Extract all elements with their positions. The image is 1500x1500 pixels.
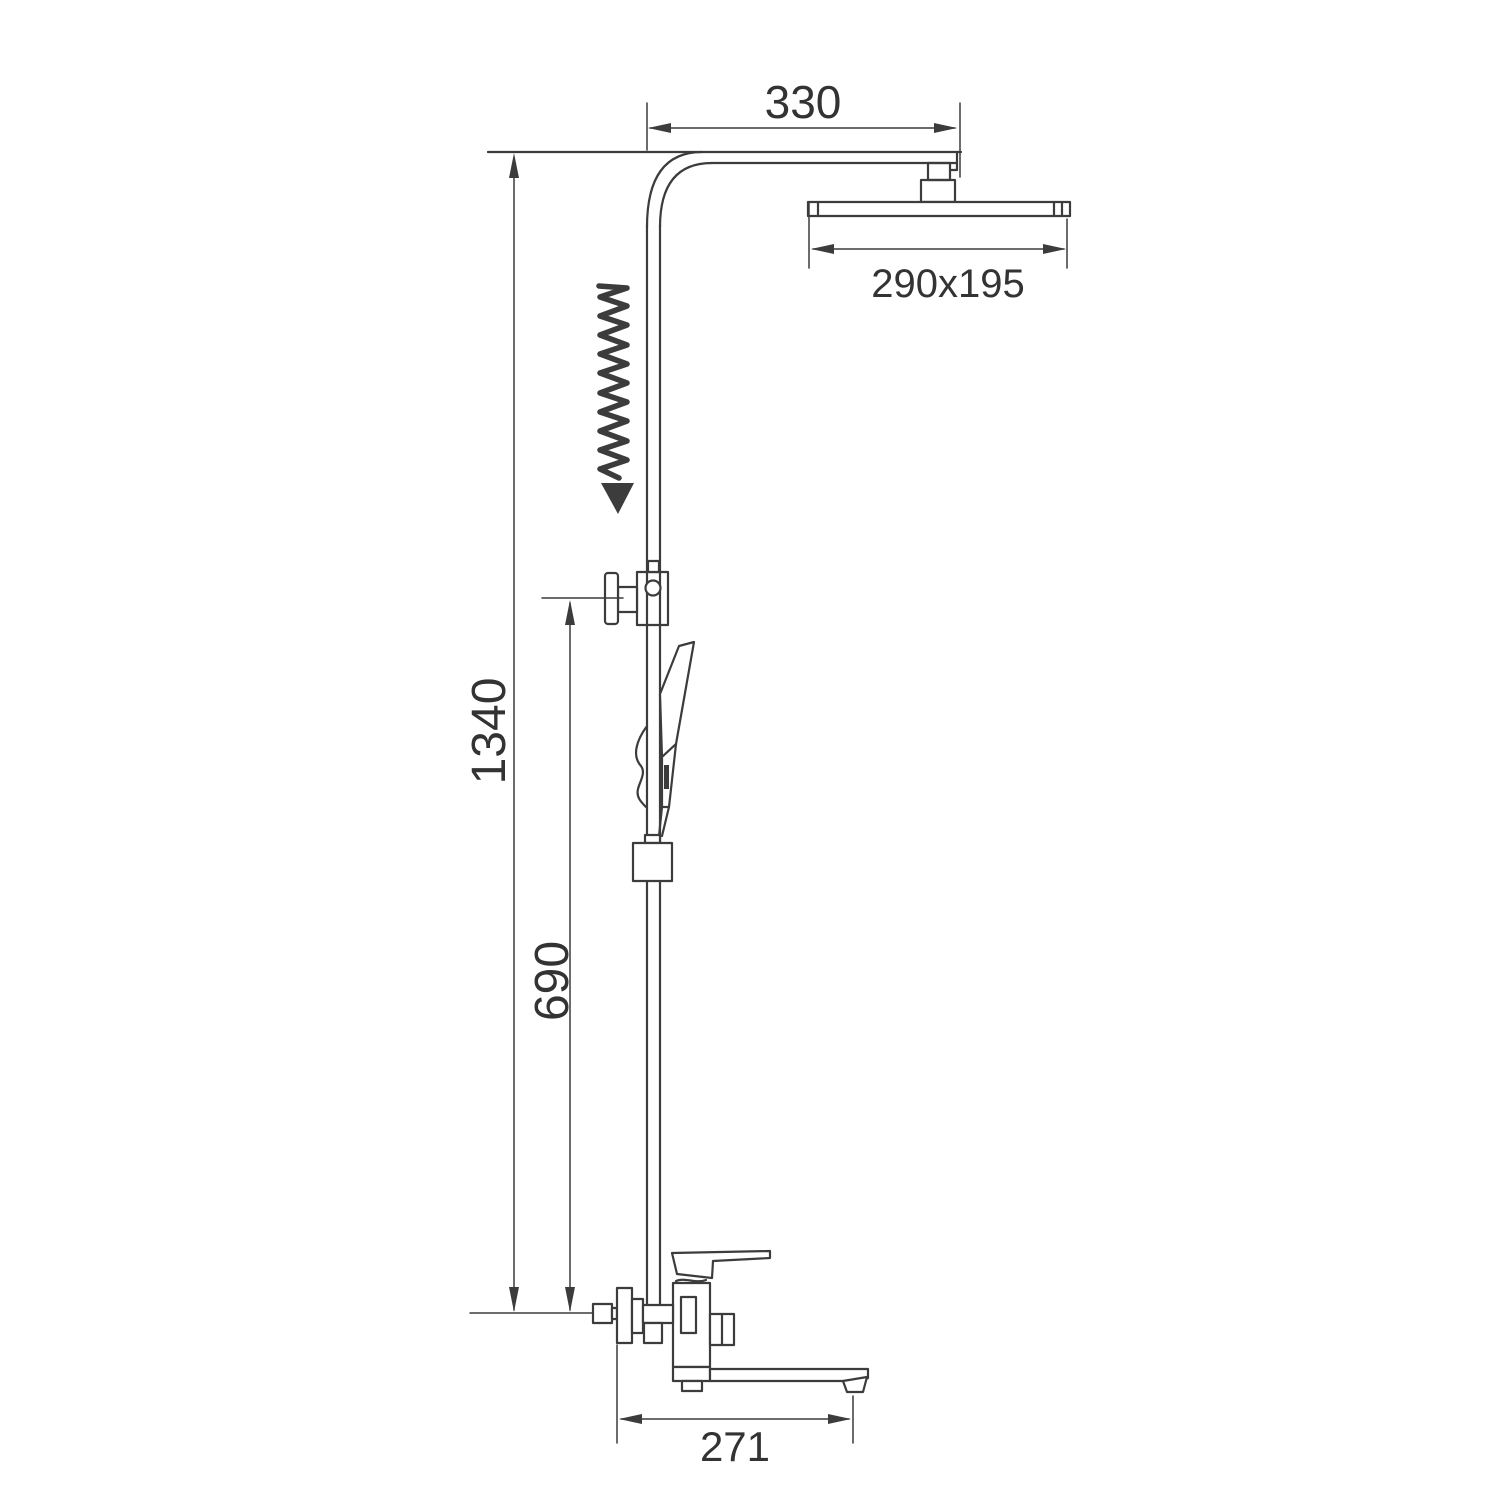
dimension-label-top-width: 330 xyxy=(765,76,842,128)
arrow-right xyxy=(1043,244,1066,254)
zigzag-arrowhead xyxy=(601,483,634,514)
head-connector-nipple xyxy=(928,163,950,180)
hand-shower xyxy=(633,642,694,881)
dimension-label-spout-reach: 271 xyxy=(700,1423,770,1470)
arrow-down xyxy=(509,1287,519,1312)
hose-squiggle xyxy=(636,726,647,807)
wall-escutcheon xyxy=(617,1288,632,1343)
dimension-label-head-size: 290x195 xyxy=(871,262,1024,306)
mixer-lever-handle xyxy=(672,1251,770,1278)
arrow-up xyxy=(509,153,519,178)
hand-shower-paddle xyxy=(660,642,694,757)
slider-holder xyxy=(605,561,668,625)
wall-mixer xyxy=(593,1251,770,1367)
diverter-stem xyxy=(618,587,637,612)
technical-drawing-page: 330 290x195 1340 690 271 xyxy=(0,0,1500,1500)
arrow-left xyxy=(619,1414,642,1424)
pipe-inner-bend xyxy=(660,163,712,227)
mixer-body xyxy=(673,1283,710,1367)
zigzag-line xyxy=(599,286,627,478)
arrow-down xyxy=(565,1287,575,1312)
height-adjust-indicator xyxy=(599,286,634,514)
escutcheon-inner-plate xyxy=(632,1299,643,1333)
dimension-label-mid-height: 690 xyxy=(526,941,579,1021)
rain-head-slab xyxy=(808,202,1070,216)
spout-root xyxy=(673,1367,710,1381)
holder-top-clamp xyxy=(648,561,659,572)
holder-pivot-ring xyxy=(646,581,661,596)
arrow-right xyxy=(934,123,957,133)
arrow-left xyxy=(811,244,834,254)
shower-set-technical-drawing: 330 290x195 1340 690 271 xyxy=(0,0,1500,1500)
handle-to-hose-right xyxy=(662,807,669,836)
dimension-labels: 330 290x195 1340 690 271 xyxy=(463,76,1025,1470)
hose-slide-block xyxy=(633,843,672,881)
inlet-lower-nut xyxy=(644,1323,662,1343)
dimension-label-total-height: 1340 xyxy=(463,678,516,785)
inlet-connector xyxy=(643,1305,673,1323)
overhead-shower xyxy=(808,163,1070,216)
wall-union-nut xyxy=(593,1304,612,1323)
shower-arm xyxy=(488,152,961,170)
spout-foot xyxy=(682,1381,702,1391)
head-connector-block xyxy=(921,180,955,202)
hose-neck xyxy=(645,835,660,843)
arrow-left xyxy=(648,123,671,133)
arrow-right xyxy=(828,1414,851,1424)
cartridge-cap-line xyxy=(676,1280,706,1282)
handle-grip-shade xyxy=(664,765,669,789)
tub-spout xyxy=(673,1367,868,1392)
arrow-up xyxy=(565,600,575,625)
pipe-outer-bend xyxy=(647,152,702,227)
spout-bar xyxy=(710,1369,868,1381)
